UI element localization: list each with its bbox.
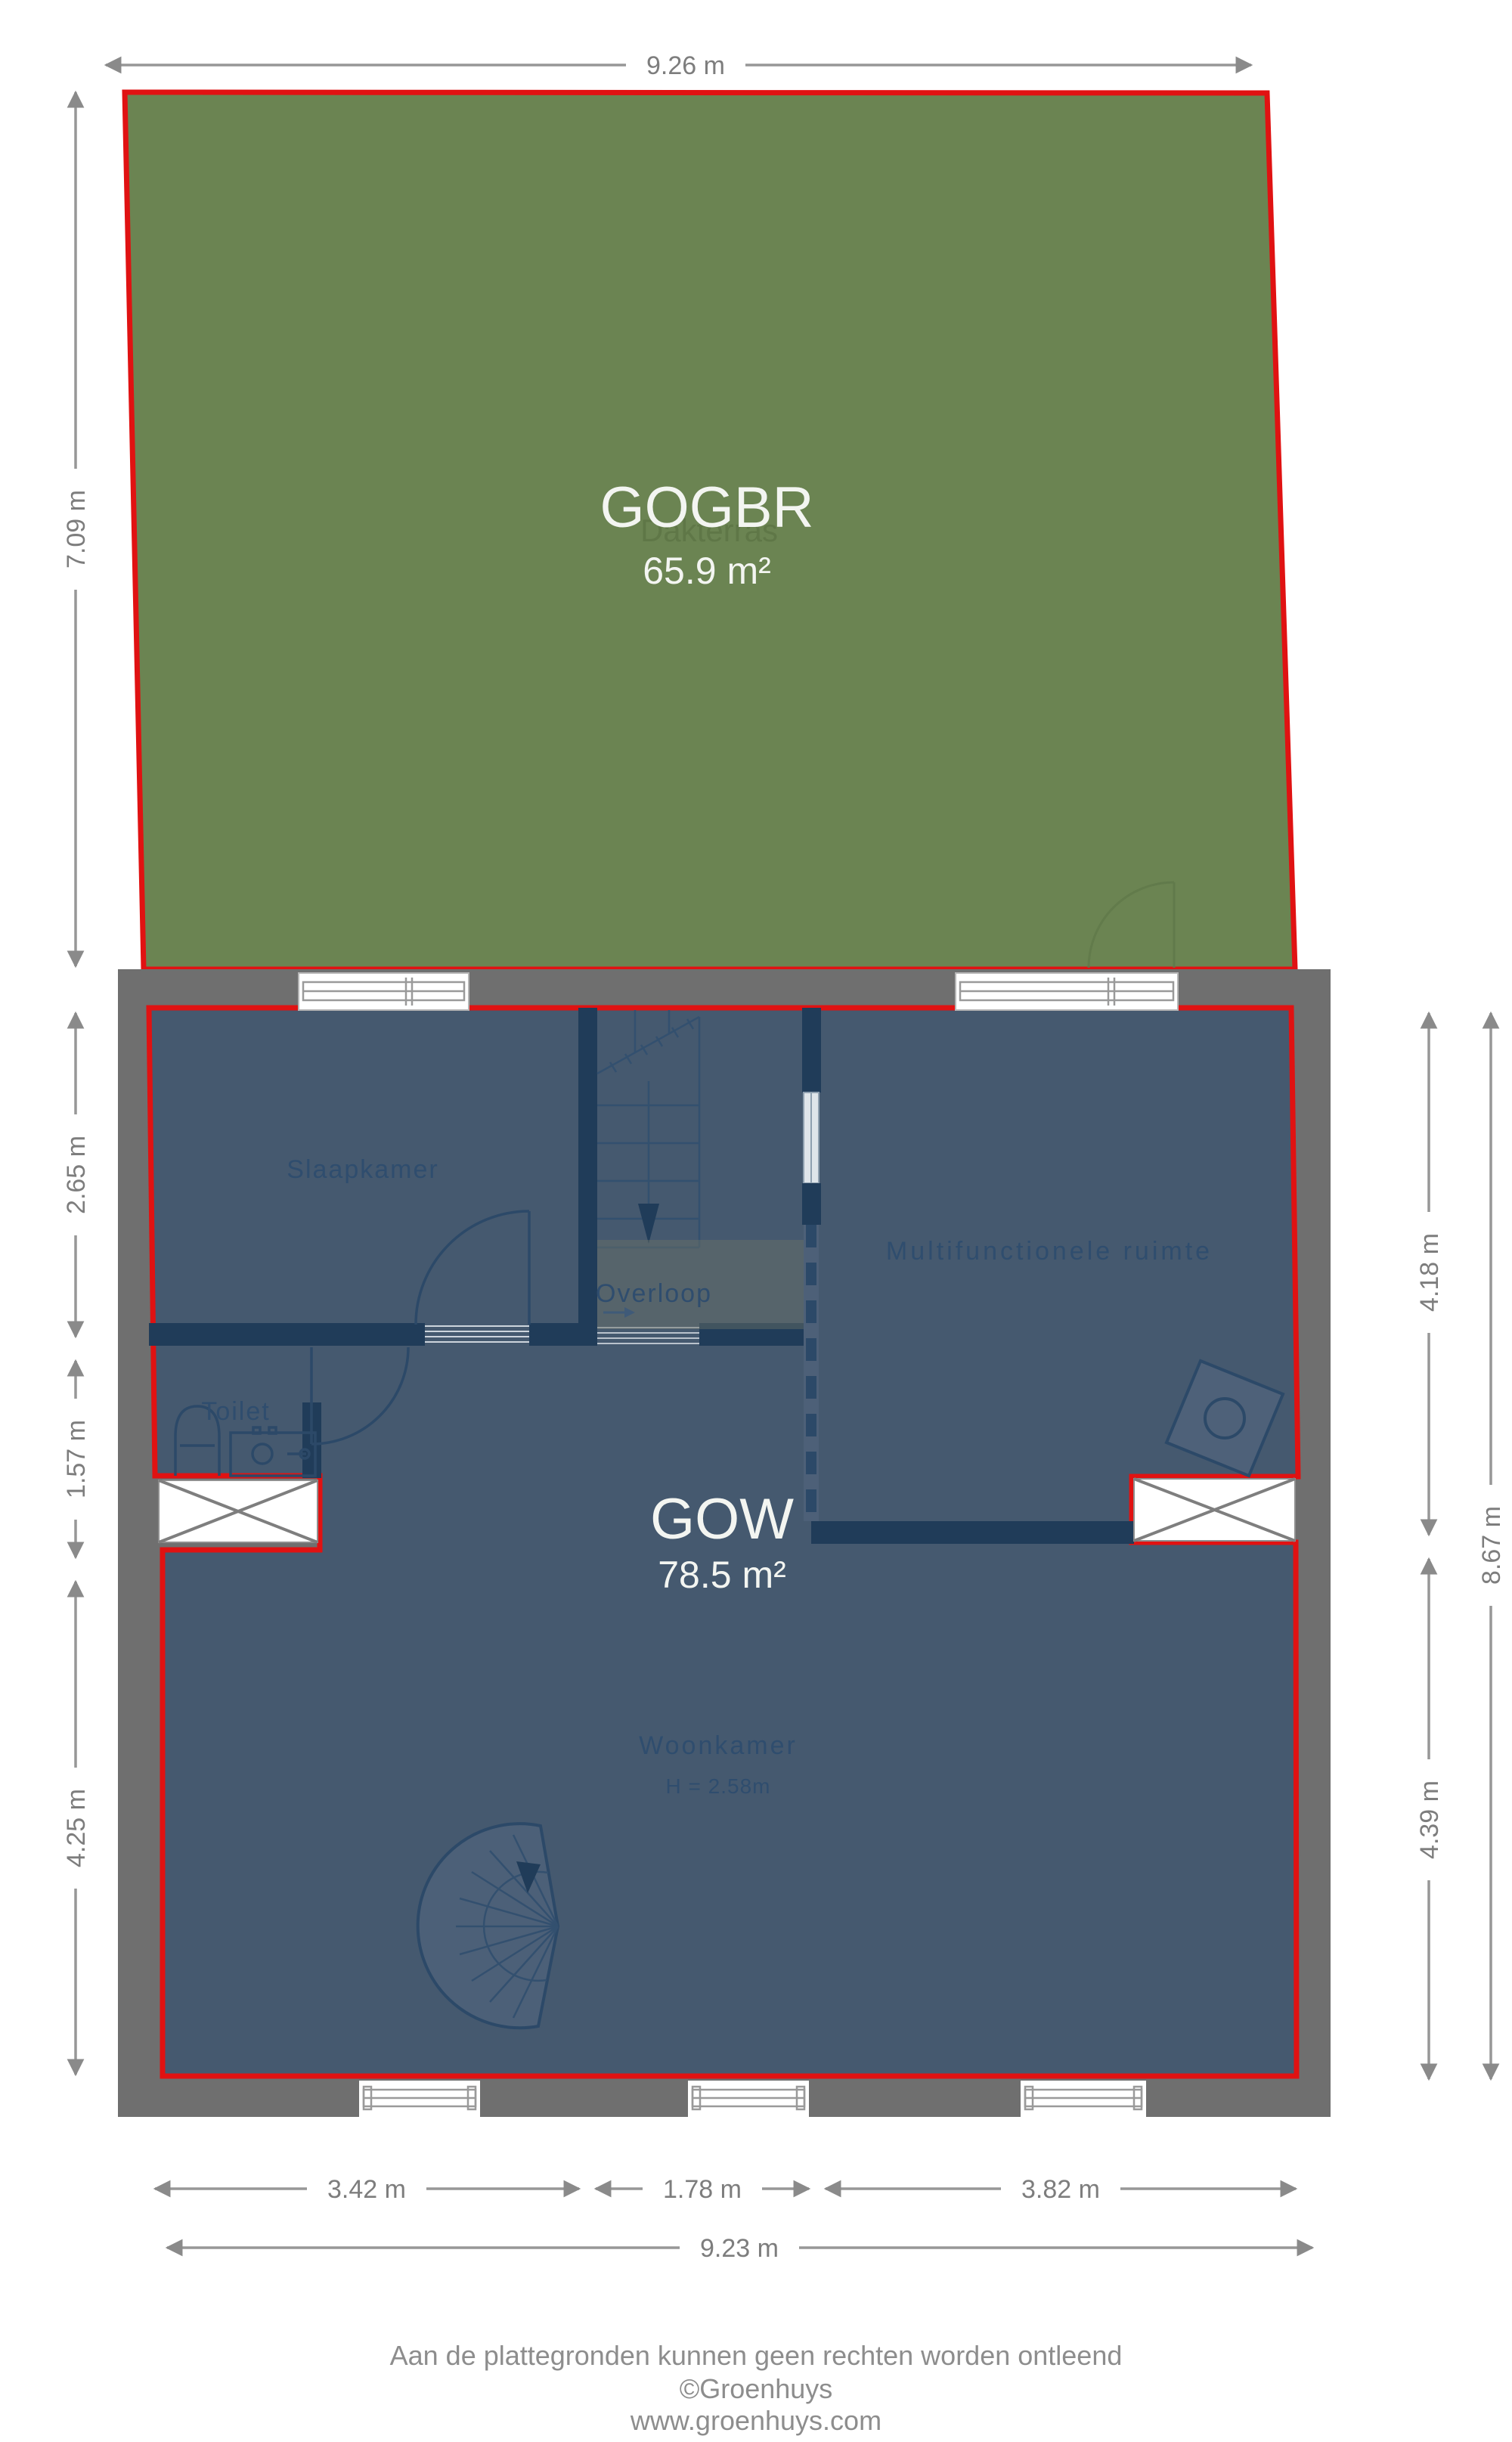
dim-right-upper-label: 4.18 m <box>1415 1233 1444 1312</box>
dim-left-mid-group: 1.57 m <box>59 1399 94 1520</box>
dim-left-upper-group: 2.65 m <box>59 1114 94 1235</box>
dim-right-total-group: 8.67 m <box>1474 1485 1509 1606</box>
window-top-1 <box>299 973 469 1010</box>
bedroom-label: Slaapkamer <box>287 1155 438 1184</box>
dim-left-top-label: 7.09 m <box>62 490 91 569</box>
dim-right-lower-group: 4.39 m <box>1412 1759 1447 1880</box>
wall-bedroom-stair <box>578 1008 597 1346</box>
dim-left-lower-label: 4.25 m <box>62 1789 91 1867</box>
floorplan-canvas: Dakterras GOGBR 65.9 m² <box>0 0 1512 2442</box>
dim-bottom-mid-label: 1.78 m <box>663 2175 742 2204</box>
terrace-code-label: GOGBR <box>600 476 814 540</box>
floor-area-label: 78.5 m² <box>658 1554 786 1596</box>
window-bottom-1 <box>359 2081 480 2118</box>
roof-terrace-area: Dakterras GOGBR 65.9 m² <box>125 92 1295 969</box>
window-top-2 <box>956 973 1178 1010</box>
toilet-label: Toilet <box>201 1397 270 1426</box>
dim-left-upper-label: 2.65 m <box>62 1136 91 1214</box>
dim-left-mid-label: 1.57 m <box>62 1420 91 1498</box>
footer-website: www.groenhuys.com <box>630 2405 881 2436</box>
dim-right-total-label: 8.67 m <box>1477 1506 1506 1585</box>
dim-bottom-left-label: 3.42 m <box>327 2175 406 2204</box>
footer-disclaimer: Aan de plattegronden kunnen geen rechten… <box>390 2340 1123 2371</box>
dim-top-label: 9.26 m <box>646 51 725 80</box>
dim-left-top-group: 7.09 m <box>59 469 94 590</box>
inner-window-icon <box>804 1092 819 1183</box>
dim-left-lower-group: 4.25 m <box>59 1768 94 1889</box>
wall-bedroom-bottom <box>149 1323 425 1346</box>
shaft-right <box>1134 1479 1295 1541</box>
window-bottom-3 <box>1021 2081 1146 2118</box>
terrace-area-label: 65.9 m² <box>643 550 771 592</box>
dim-right-upper-group: 4.18 m <box>1412 1212 1447 1333</box>
living-height-label: H = 2.58m <box>666 1774 771 1798</box>
shaft-left <box>159 1480 318 1542</box>
wall-bedroom-bottom-post <box>529 1323 578 1346</box>
wall-stair-multi-top <box>802 1008 821 1092</box>
dim-bottom-total-label: 9.23 m <box>700 2234 779 2263</box>
wall-stair-multi-mid <box>802 1183 821 1225</box>
window-bottom-2 <box>688 2081 809 2118</box>
floor-code-label: GOW <box>650 1487 794 1551</box>
footer-copyright: ©Groenhuys <box>680 2373 833 2404</box>
multi-room-label: Multifunctionele ruimte <box>886 1237 1213 1266</box>
dim-right-lower-label: 4.39 m <box>1415 1780 1444 1859</box>
landing-label: Overloop <box>596 1279 712 1308</box>
footer: Aan de plattegronden kunnen geen rechten… <box>390 2340 1123 2436</box>
living-room-label: Woonkamer <box>639 1731 798 1760</box>
wall-multi-bottom <box>811 1521 1134 1544</box>
dim-bottom-right-label: 3.82 m <box>1021 2175 1100 2204</box>
